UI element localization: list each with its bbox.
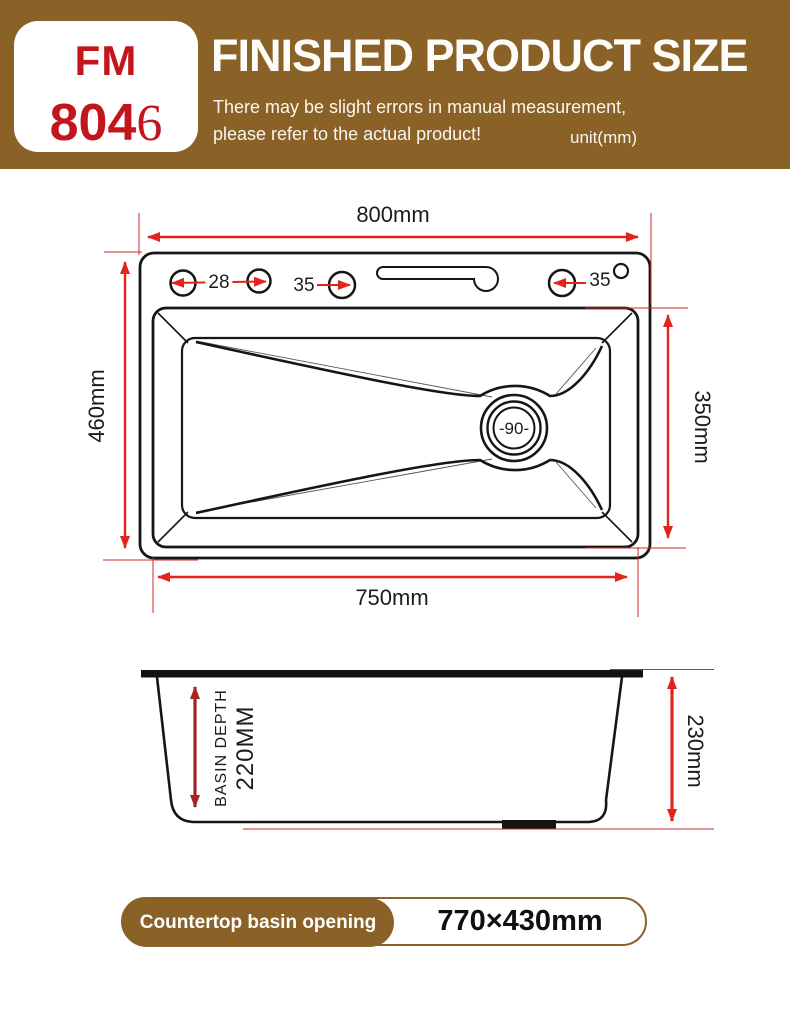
dim-800-label: 800mm (356, 202, 429, 228)
disclaimer-line1: There may be slight errors in manual mea… (213, 94, 626, 121)
basin-opening-edge (153, 308, 638, 547)
drain-90-label: -90- (498, 419, 530, 439)
drain-stub (502, 820, 556, 829)
model-number: 8046 (14, 97, 198, 150)
dim-230-label: 230mm (682, 714, 708, 787)
hole-35-right-label: 35 (589, 270, 610, 292)
disclaimer-line2: please refer to the actual product! (213, 121, 626, 148)
countertop-opening-size: 770×430mm (394, 899, 646, 944)
side-extension-lines (243, 670, 714, 830)
basin-depth-value: 220MM (232, 705, 260, 790)
deck-hole-small (614, 264, 628, 278)
sink-outer-edge (140, 253, 650, 558)
model-number-suffix: 6 (136, 95, 162, 152)
faucet-slot (377, 267, 498, 291)
model-number-main: 804 (50, 94, 137, 152)
product-size-infographic: FM 8046 FINISHED PRODUCT SIZE There may … (0, 0, 790, 1010)
countertop-opening-callout: Countertop basin opening 770×430mm (121, 897, 647, 946)
hole-28-label: 28 (205, 272, 232, 294)
basin-depth-label: BASIN DEPTH (213, 689, 231, 807)
dim-350-label: 350mm (689, 390, 715, 463)
countertop-opening-label: Countertop basin opening (140, 912, 376, 934)
dim-460-label: 460mm (84, 369, 110, 442)
top-view-outline (140, 253, 650, 558)
model-prefix: FM (14, 37, 198, 85)
disclaimer-text: There may be slight errors in manual mea… (213, 94, 626, 148)
countertop-opening-tag: Countertop basin opening (122, 898, 394, 947)
page-title: FINISHED PRODUCT SIZE (211, 30, 786, 82)
panel-crease-lines (196, 341, 596, 512)
model-badge: FM 8046 (14, 21, 198, 152)
header-banner: FM 8046 FINISHED PRODUCT SIZE There may … (0, 0, 790, 169)
dim-750-label: 750mm (355, 585, 428, 611)
unit-label: unit(mm) (570, 128, 637, 148)
countertop-rim (141, 670, 643, 678)
hole-35-left-label: 35 (293, 275, 314, 297)
